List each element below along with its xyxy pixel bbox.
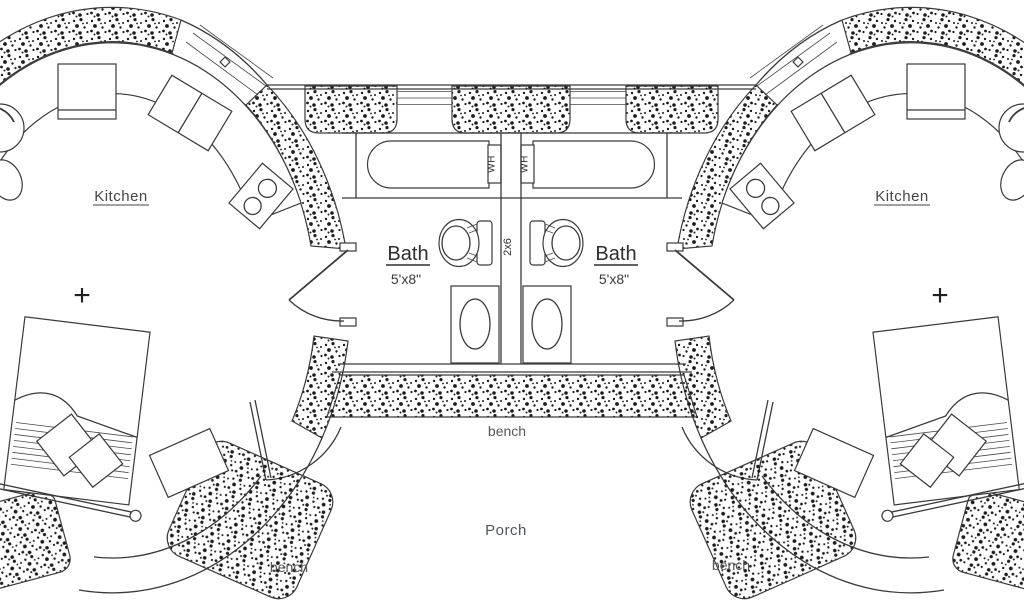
wall-pier	[452, 86, 570, 133]
water-heater-label-left: WH	[487, 155, 498, 173]
kitchen-label-right: Kitchen	[875, 188, 929, 205]
floor-plan-page: Kitchen Kitchen Bath 5'x8" Bath 5'x8" WH…	[0, 0, 1024, 600]
bench-seat	[327, 375, 697, 417]
wall-pier	[305, 86, 397, 133]
wall-pier	[626, 86, 718, 133]
toilet-icon	[530, 220, 583, 267]
window-icon	[397, 92, 452, 105]
bench-label-left: bench	[270, 559, 308, 575]
dome-center-marker-right: +	[931, 279, 949, 312]
bath-label-right: Bath	[595, 243, 636, 265]
bathtub-icon	[368, 141, 489, 188]
vanity-sink-icon	[451, 286, 499, 363]
dome-center-marker-left: +	[73, 279, 91, 312]
stud-wall-label: 2x6	[502, 238, 514, 256]
porch-label: Porch	[485, 522, 527, 539]
bath-size-right: 5'x8"	[599, 271, 629, 287]
kitchen-label-left: Kitchen	[94, 188, 148, 205]
window-icon	[570, 92, 626, 105]
bath-size-left: 5'x8"	[391, 271, 421, 287]
left-dome	[0, 7, 356, 600]
toilet-icon	[439, 220, 492, 267]
right-dome	[667, 7, 1024, 600]
water-heater-label-right: WH	[520, 155, 531, 173]
vanity-sink-icon	[523, 286, 571, 363]
floor-plan-drawing: Kitchen Kitchen Bath 5'x8" Bath 5'x8" WH…	[0, 0, 1024, 600]
bench-label-center: bench	[488, 423, 526, 439]
bench-label-right: bench	[712, 557, 750, 573]
bath-label-left: Bath	[387, 243, 428, 265]
bathtub-icon	[533, 141, 654, 188]
